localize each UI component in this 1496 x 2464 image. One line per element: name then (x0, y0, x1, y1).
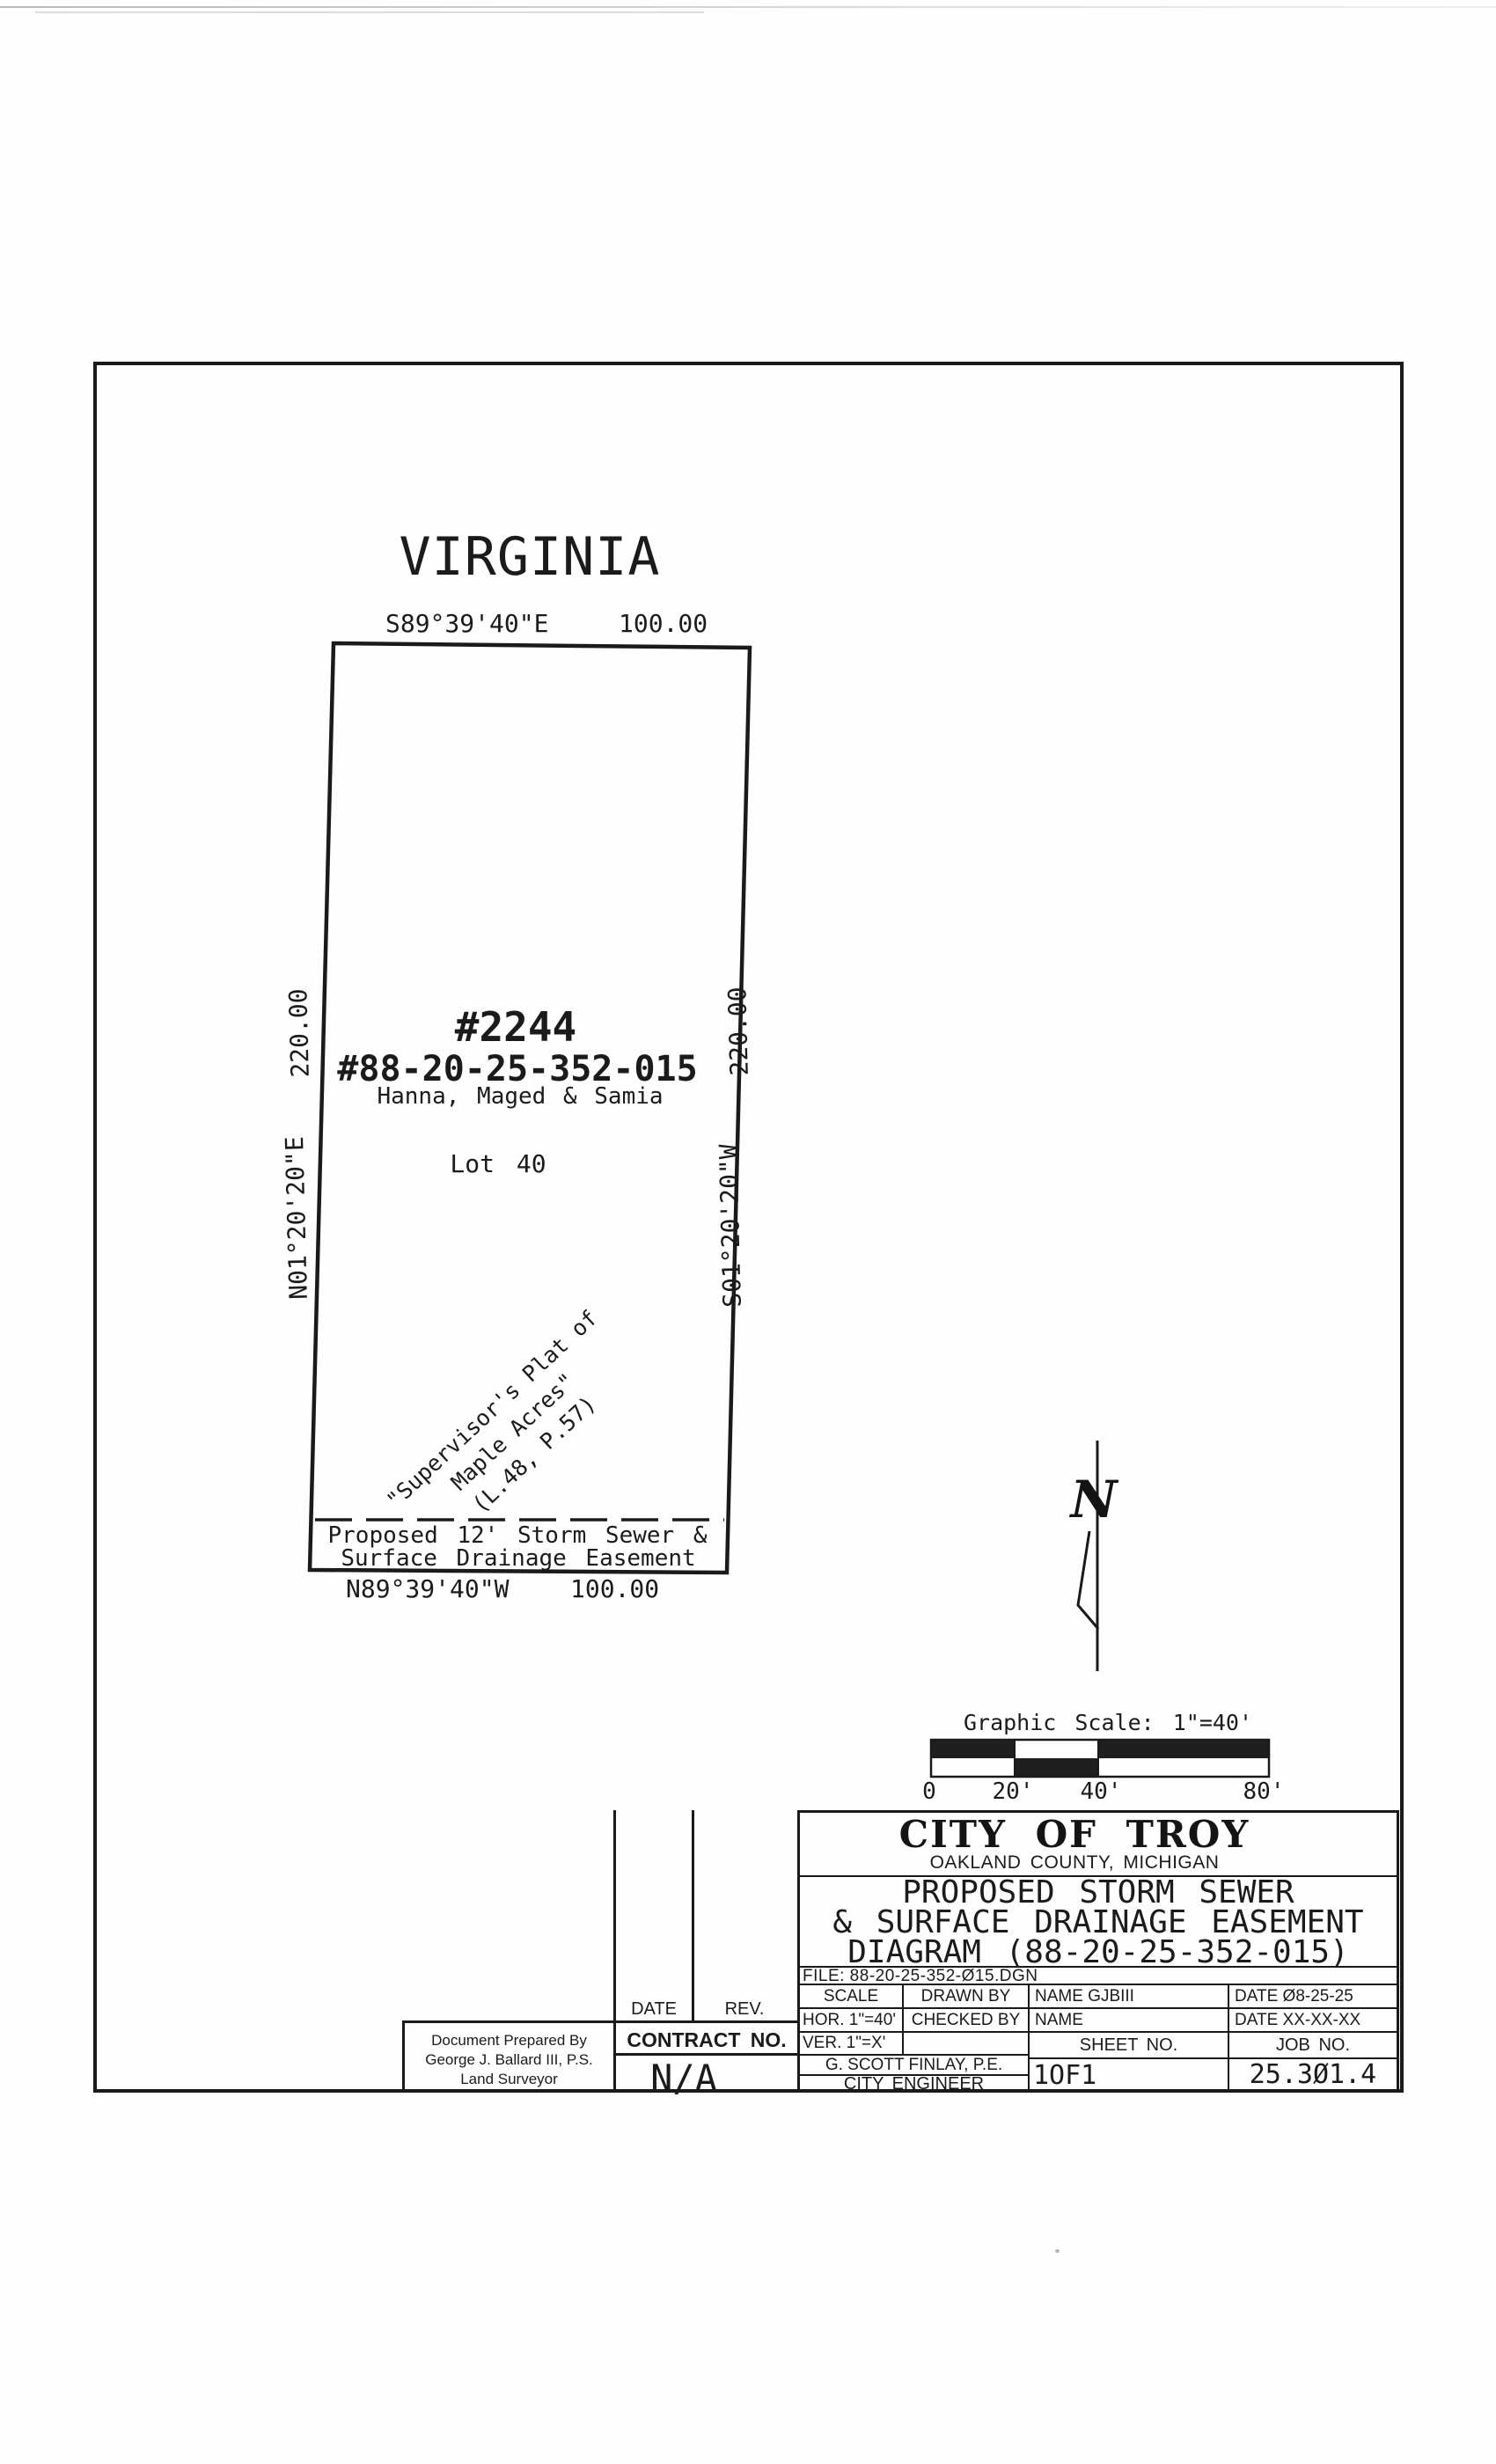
parcel-west-distance: 220.00 (283, 988, 315, 1078)
file-cell: FILE: 88-20-25-352-Ø15.DGN (800, 1968, 1397, 1985)
parcel-top-bearing: S89°39'40"E (385, 609, 548, 638)
contract-no-label: CONTRACT NO. (627, 2028, 786, 2052)
contract-no-value: N/A (650, 2057, 717, 2100)
sheet-title-cell: PROPOSED STORM SEWER & SURFACE DRAINAGE … (800, 1877, 1397, 1968)
title-block: CITY OF TROY OAKLAND COUNTY, MICHIGAN PR… (797, 1810, 1399, 2093)
county-name: OAKLAND COUNTY, MICHIGAN (800, 1852, 1373, 1874)
scale-header-cell: SCALE (800, 1985, 904, 2009)
graphic-scale-title: Graphic Scale: 1"=40' (964, 1710, 1252, 1735)
scale-bar (931, 1740, 1269, 1777)
parcel-bottom-bearing: N89°39'40"W (346, 1574, 509, 1603)
job-no-label-cell: JOB NO. (1229, 2033, 1397, 2059)
sheet-title-line2: & SURFACE DRAINAGE EASEMENT (800, 1908, 1397, 1938)
sheet-no-value-cell: 1OF1 (1030, 2059, 1229, 2090)
engineer-title-cell: CITY ENGINEER (800, 2076, 1030, 2090)
drawn-by-cell: DRAWN BY (904, 1985, 1030, 2009)
checked-by-cell: CHECKED BY (904, 2009, 1030, 2033)
empty-cell (904, 2033, 1030, 2056)
scale-bar-seg (931, 1740, 1015, 1758)
sheet-no-label-cell: SHEET NO. (1030, 2033, 1229, 2059)
easement-label-line2: Surface Drainage Easement (341, 1545, 695, 1572)
prepared-by-line1: Document Prepared By (405, 2031, 613, 2050)
house-number: #2244 (455, 1003, 576, 1051)
drawn-by-date-cell: DATE Ø8-25-25 (1229, 1985, 1397, 2009)
contract-no-divider (613, 2053, 798, 2056)
revision-rev-label: REV. (725, 1999, 765, 2020)
engineer-cell: G. SCOTT FINLAY, P.E. (800, 2056, 1030, 2076)
scanned-survey-sheet: VIRGINIA S89°39'40"E 100.00 #2244 #88-20… (0, 0, 1496, 2464)
prepared-by-line3: Land Surveyor (405, 2070, 613, 2089)
street-name: VIRGINIA (400, 526, 661, 588)
checked-by-date-cell: DATE XX-XX-XX (1229, 2009, 1397, 2033)
parcel-bottom-distance: 100.00 (570, 1574, 659, 1603)
sheet-no-value: 1OF1 (1030, 2060, 1096, 2090)
revision-col-line-mid (692, 1810, 694, 2022)
checked-by-name-cell: NAME (1030, 2009, 1229, 2033)
scale-tick-80: 80' (1243, 1778, 1285, 1805)
scale-bar-seg (1098, 1740, 1269, 1758)
sheet-title-line3: DIAGRAM (88-20-25-352-015) (800, 1938, 1397, 1968)
parcel-top-distance: 100.00 (619, 609, 708, 638)
scale-bar-seg (1015, 1758, 1098, 1777)
drawn-by-name-cell: NAME GJBIII (1030, 1985, 1229, 2009)
north-arrow-barb (1078, 1531, 1098, 1629)
scale-tick-40: 40' (1081, 1778, 1122, 1805)
survey-linework (0, 0, 1496, 2464)
agency-header-cell: CITY OF TROY OAKLAND COUNTY, MICHIGAN (800, 1813, 1397, 1877)
ver-scale-cell: VER. 1"=X' (800, 2033, 904, 2056)
hor-scale-cell: HOR. 1"=40' (800, 2009, 904, 2033)
job-no-value: 25.3Ø1.4 (1250, 2059, 1377, 2090)
scale-tick-20: 20' (993, 1778, 1034, 1805)
revision-date-label: DATE (631, 1999, 677, 2020)
parcel-east-distance: 220.00 (722, 986, 754, 1076)
job-no-value-cell: 25.3Ø1.4 (1229, 2059, 1397, 2090)
prepared-by-box: Document Prepared By George J. Ballard I… (402, 2020, 616, 2093)
agency-name: CITY OF TROY (800, 1813, 1373, 1856)
scale-tick-0: 0 (922, 1778, 936, 1805)
lot-label: Lot 40 (450, 1149, 546, 1178)
sheet-title-line1: PROPOSED STORM SEWER (800, 1878, 1397, 1908)
parcel-west-bearing: N01°20'20"E (280, 1136, 313, 1300)
parcel-east-bearing: S01°20'20"W (714, 1144, 747, 1308)
north-arrow-label: N (1070, 1470, 1117, 1529)
owner-name: Hanna, Maged & Samia (377, 1083, 663, 1110)
prepared-by-line2: George J. Ballard III, P.S. (405, 2050, 613, 2070)
